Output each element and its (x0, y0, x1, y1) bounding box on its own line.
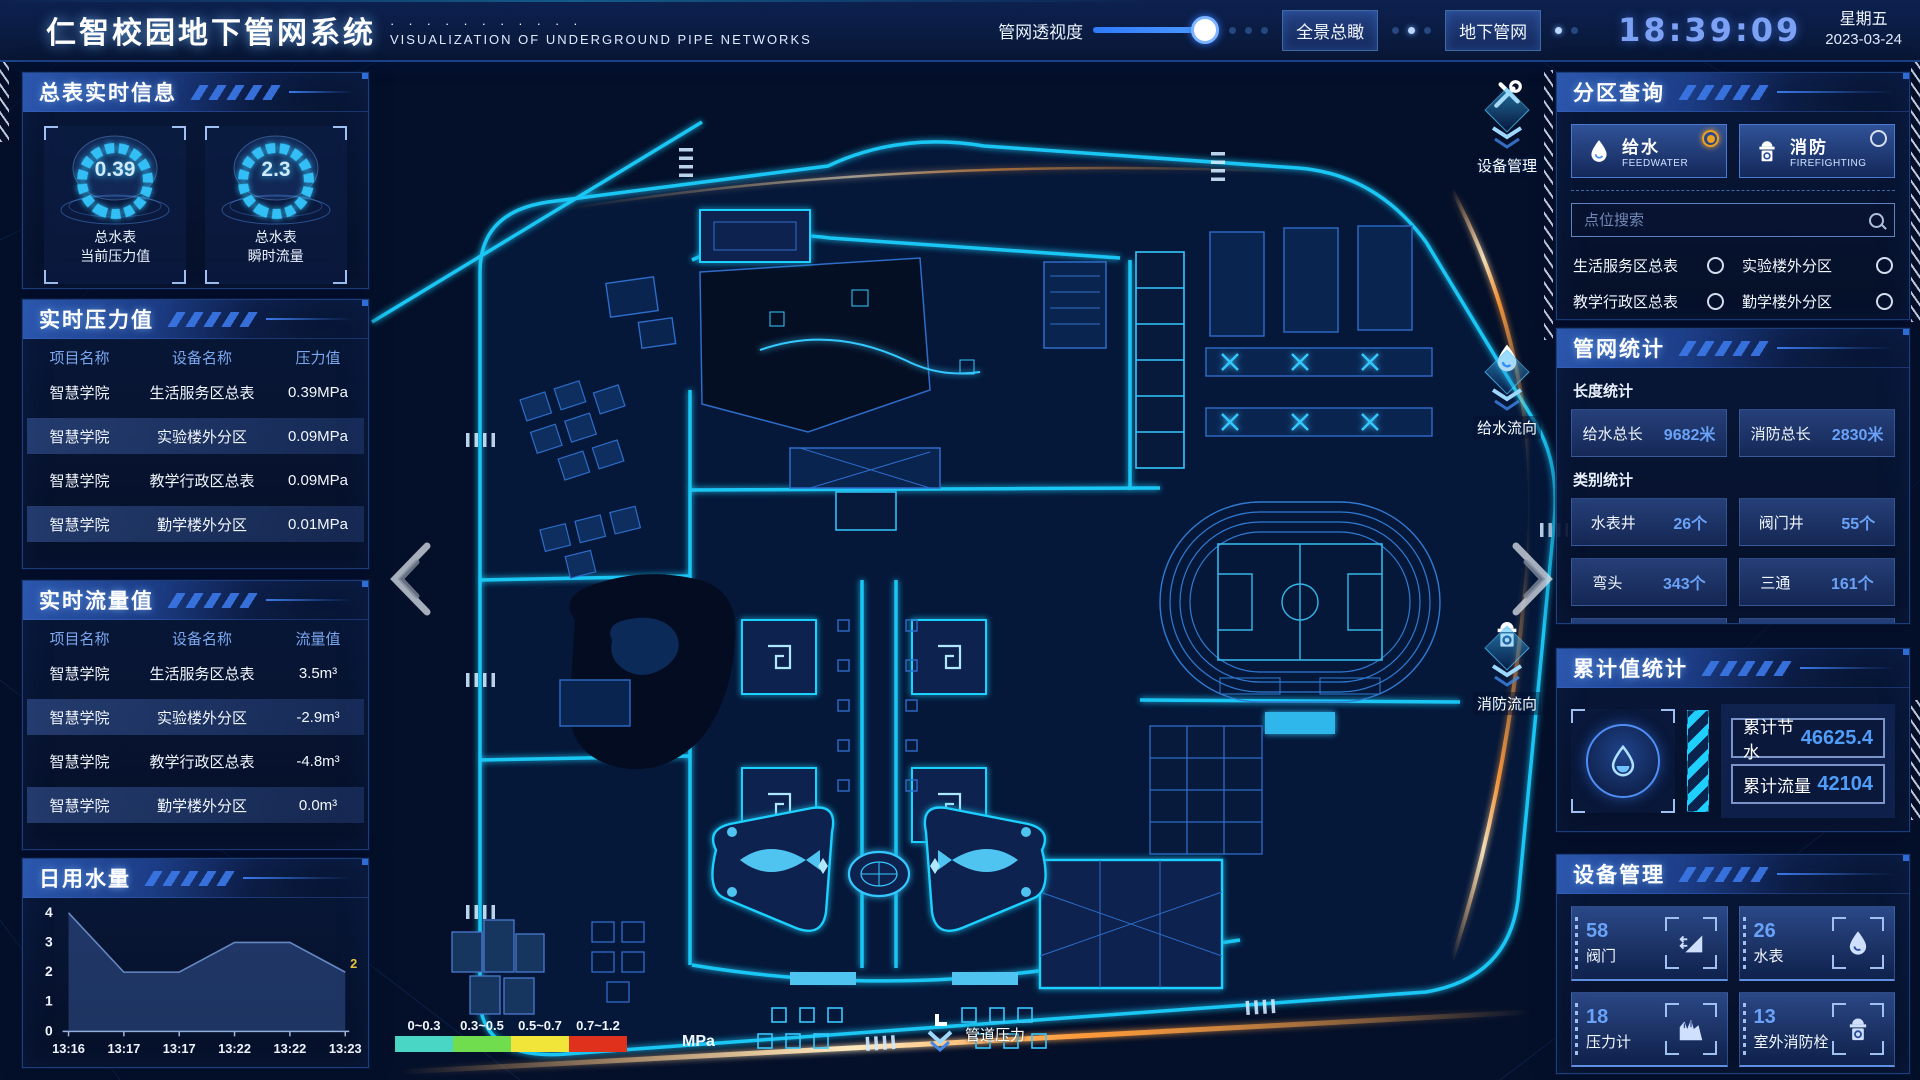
stat-box: 弯头343个 (1571, 558, 1727, 606)
underground-button[interactable]: 地下管网 (1445, 10, 1541, 51)
device-card-water-meter[interactable]: 26水表 (1739, 906, 1896, 981)
table-row: 智慧学院生活服务区总表0.39MPa (27, 374, 364, 410)
search-icon[interactable] (1869, 213, 1884, 228)
radio-unselected[interactable] (1876, 257, 1893, 274)
map-tool-feedwater-flow[interactable]: 给水流向 (1462, 342, 1552, 439)
table-header: 项目名称设备名称压力值 (23, 339, 368, 374)
table-row: 智慧学院实验楼外分区0.09MPa (27, 418, 364, 454)
date-block: 星期五 2023-03-24 (1825, 10, 1902, 50)
legend-color-0.3-0.5 (453, 1036, 511, 1052)
svg-text:0: 0 (45, 1022, 53, 1038)
clock: 18:39:09 (1618, 11, 1801, 49)
feedwater-toggle-button[interactable]: 给水FEEDWATER (1571, 124, 1727, 178)
svg-text:2.3: 2.3 (261, 158, 290, 181)
weekday: 星期五 (1840, 10, 1888, 30)
device-card-hydrant[interactable]: 13室外消防栓 (1739, 992, 1896, 1067)
svg-text:13:17: 13:17 (107, 1041, 140, 1056)
svg-text:13:22: 13:22 (273, 1041, 306, 1056)
svg-text:13:22: 13:22 (218, 1041, 251, 1056)
water-drop-icon (1586, 138, 1612, 164)
cumulative-flow: 累计流量42104 (1731, 764, 1885, 804)
panel-title: 分区查询 (1573, 77, 1665, 107)
title-slashes-decoration (1678, 867, 1773, 882)
svg-text:13:16: 13:16 (52, 1041, 85, 1056)
stat-box: 水表井26个 (1571, 498, 1727, 546)
device-card-valve[interactable]: 58阀门 (1571, 906, 1728, 981)
edge-stripe-decoration (0, 62, 9, 142)
zone-list-item[interactable]: 实验楼外分区 (1742, 247, 1893, 283)
pipe-network-stats-panel: 管网统计 长度统计 给水总长9682米 消防总长2830米 类别统计 水表井26… (1556, 328, 1910, 624)
dashboard-root: 仁智校园地下管网系统 ··········· VISUALIZATION OF … (0, 0, 1920, 1080)
table-row: 智慧学院实验楼外分区-2.9m³ (27, 699, 364, 735)
stat-box: 给水总长9682米 (1571, 409, 1727, 457)
zone-list-item[interactable]: 生活服务区总表 (1573, 247, 1724, 283)
table-row: 智慧学院勤学楼外分区0.01MPa (27, 506, 364, 542)
dot-separator (1555, 27, 1578, 34)
app-subtitle: VISUALIZATION OF UNDERGROUND PIPE NETWOR… (390, 32, 812, 47)
svg-text:1: 1 (45, 993, 53, 1009)
daily-water-chart: 0 1 2 3 4 13:16 13:17 13:17 13:22 13:22 … (29, 902, 365, 1062)
transparency-label: 管网透视度 (998, 18, 1083, 43)
stat-box: 三通161个 (1739, 558, 1895, 606)
table-header: 项目名称设备名称流量值 (23, 620, 368, 655)
title-slashes-decoration (167, 312, 262, 327)
legend-color-0-0.3 (395, 1036, 453, 1052)
realtime-flow-panel: 实时流量值 项目名称设备名称流量值 智慧学院生活服务区总表3.5m³ 智慧学院实… (22, 580, 369, 850)
svg-text:13:17: 13:17 (163, 1041, 196, 1056)
category-stats-label: 类别统计 (1573, 469, 1909, 490)
title-slashes-decoration (1701, 661, 1796, 676)
app-subtitle-block: ··········· VISUALIZATION OF UNDERGROUND… (390, 19, 812, 47)
svg-text:3: 3 (45, 933, 53, 949)
water-meter-icon (1832, 917, 1884, 969)
device-management-panel: 设备管理 58阀门 26水表 18压力计 13室外消防栓 (1556, 854, 1910, 1074)
edge-stripe-decoration (1544, 70, 1553, 340)
table-row: 智慧学院勤学楼外分区0.0m³ (27, 787, 364, 823)
svg-text:13:23: 13:23 (329, 1041, 362, 1056)
edge-stripe-decoration (1911, 700, 1920, 820)
map-pan-left-arrow[interactable] (383, 540, 435, 618)
radio-unselected[interactable] (1707, 257, 1724, 274)
pressure-table: 智慧学院生活服务区总表0.39MPa 智慧学院实验楼外分区0.09MPa 智慧学… (23, 374, 368, 550)
app-title: 仁智校园地下管网系统 (46, 8, 376, 52)
header-dots-decoration: ··········· (390, 19, 812, 29)
flow-table: 智慧学院生活服务区总表3.5m³ 智慧学院实验楼外分区-2.9m³ 智慧学院教学… (23, 655, 368, 831)
panel-title: 管网统计 (1573, 333, 1665, 363)
zone-query-panel: 分区查询 给水FEEDWATER 消防FIREFIGHTING 生活服务区总表 (1556, 72, 1910, 320)
valve-icon (1665, 917, 1717, 969)
pipe-pressure-toggle[interactable]: 管道压力 (925, 1012, 1025, 1056)
dot-separator (1392, 27, 1431, 34)
pressure-gauge: 0.39 总水表当前压力值 (44, 126, 186, 284)
cumulative-water-saved: 累计节水46625.4 (1731, 718, 1885, 758)
overview-button[interactable]: 全景总瞰 (1282, 10, 1378, 51)
svg-text:0.39: 0.39 (95, 158, 136, 181)
panel-title: 总表实时信息 (39, 77, 177, 107)
firefighting-toggle-button[interactable]: 消防FIREFIGHTING (1739, 124, 1895, 178)
title-slashes-decoration (1678, 85, 1773, 100)
map-tool-firefighting-flow[interactable]: 消防流向 (1462, 618, 1552, 715)
slider-thumb[interactable] (1191, 16, 1219, 44)
cumulative-stats-panel: 累计值统计 累计节水46625.4 累计流量42104 (1556, 648, 1910, 832)
gauge-dial-icon: 0.39 (55, 126, 175, 230)
svg-text:4: 4 (45, 904, 53, 920)
water-drop-icon (1586, 724, 1660, 798)
zone-list-item[interactable]: 教学行政区总表 (1573, 283, 1724, 319)
radio-selected[interactable] (1702, 130, 1719, 147)
search-input[interactable] (1582, 211, 1869, 230)
title-slashes-decoration (144, 871, 239, 886)
edge-stripe-decoration (1911, 62, 1920, 322)
top-header: 仁智校园地下管网系统 ··········· VISUALIZATION OF … (0, 0, 1920, 62)
point-search-box[interactable] (1571, 203, 1895, 237)
title-slashes-decoration (190, 85, 285, 100)
zone-list-item[interactable]: 宿舍区泵房 (1742, 319, 1893, 320)
gauge-label: 总水表瞬时流量 (248, 228, 304, 266)
map-pan-right-arrow[interactable] (1508, 540, 1560, 618)
hydrant-icon (1832, 1003, 1884, 1055)
legend-color-0.7-1.2 (569, 1036, 627, 1052)
title-slashes-decoration (167, 593, 262, 608)
panel-title: 实时压力值 (39, 304, 154, 334)
table-row: 智慧学院生活服务区总表3.5m³ (27, 655, 364, 691)
table-row: 智慧学院教学行政区总表0.09MPa (27, 462, 364, 498)
gauge-dial-icon: 2.3 (216, 126, 336, 230)
legend-unit: MPa (682, 1033, 715, 1051)
svg-text:2: 2 (350, 956, 357, 971)
svg-text:2: 2 (45, 963, 53, 979)
transparency-slider[interactable] (1093, 27, 1215, 33)
daily-water-panel: 日用水量 0 1 2 3 4 13:16 13:17 13:17 13:22 1… (22, 858, 369, 1068)
water-saving-icon-frame (1571, 709, 1675, 813)
device-card-pressure-gauge[interactable]: 18压力计 (1571, 992, 1728, 1067)
panel-title: 累计值统计 (1573, 653, 1688, 683)
stat-box-clipped (1739, 618, 1895, 624)
panel-title: 实时流量值 (39, 585, 154, 615)
radio-unselected[interactable] (1707, 293, 1724, 310)
legend-color-0.5-0.7 (511, 1036, 569, 1052)
gauge-label: 总水表当前压力值 (80, 228, 150, 266)
panel-title: 设备管理 (1573, 859, 1665, 889)
map-tool-device-management[interactable]: 设备管理 (1462, 78, 1552, 177)
table-row: 智慧学院教学行政区总表-4.8m³ (27, 743, 364, 779)
radio-unselected[interactable] (1876, 293, 1893, 310)
flow-gauge: 2.3 总水表瞬时流量 (205, 126, 347, 284)
dot-separator (1229, 27, 1268, 34)
zone-list-item[interactable]: 勤学楼外分区 (1742, 283, 1893, 319)
panel-title: 日用水量 (39, 863, 131, 893)
stat-box: 消防总长2830米 (1739, 409, 1895, 457)
master-meter-panel: 总表实时信息 0.39 总水表当前压力值 2.3 (22, 72, 369, 289)
pressure-gauge-icon (1665, 1003, 1717, 1055)
radio-unselected[interactable] (1870, 130, 1887, 147)
stat-box-clipped (1571, 618, 1727, 624)
pressure-legend: 0~0.3 0.3~0.5 0.5~0.7 0.7~1.2 MPa (395, 1018, 715, 1052)
date: 2023-03-24 (1825, 30, 1902, 50)
realtime-pressure-panel: 实时压力值 项目名称设备名称压力值 智慧学院生活服务区总表0.39MPa 智慧学… (22, 299, 369, 569)
pipe-pressure-icon (925, 1012, 955, 1056)
title-slashes-decoration (1678, 341, 1773, 356)
length-stats-label: 长度统计 (1573, 380, 1909, 401)
hydrant-icon (1754, 138, 1780, 164)
stripe-divider (1687, 710, 1709, 812)
zone-list: 生活服务区总表 实验楼外分区 教学行政区总表 勤学楼外分区 砺学楼外分区 宿舍区… (1557, 237, 1909, 320)
zone-list-item[interactable]: 砺学楼外分区 (1573, 319, 1724, 320)
stat-box: 阀门井55个 (1739, 498, 1895, 546)
